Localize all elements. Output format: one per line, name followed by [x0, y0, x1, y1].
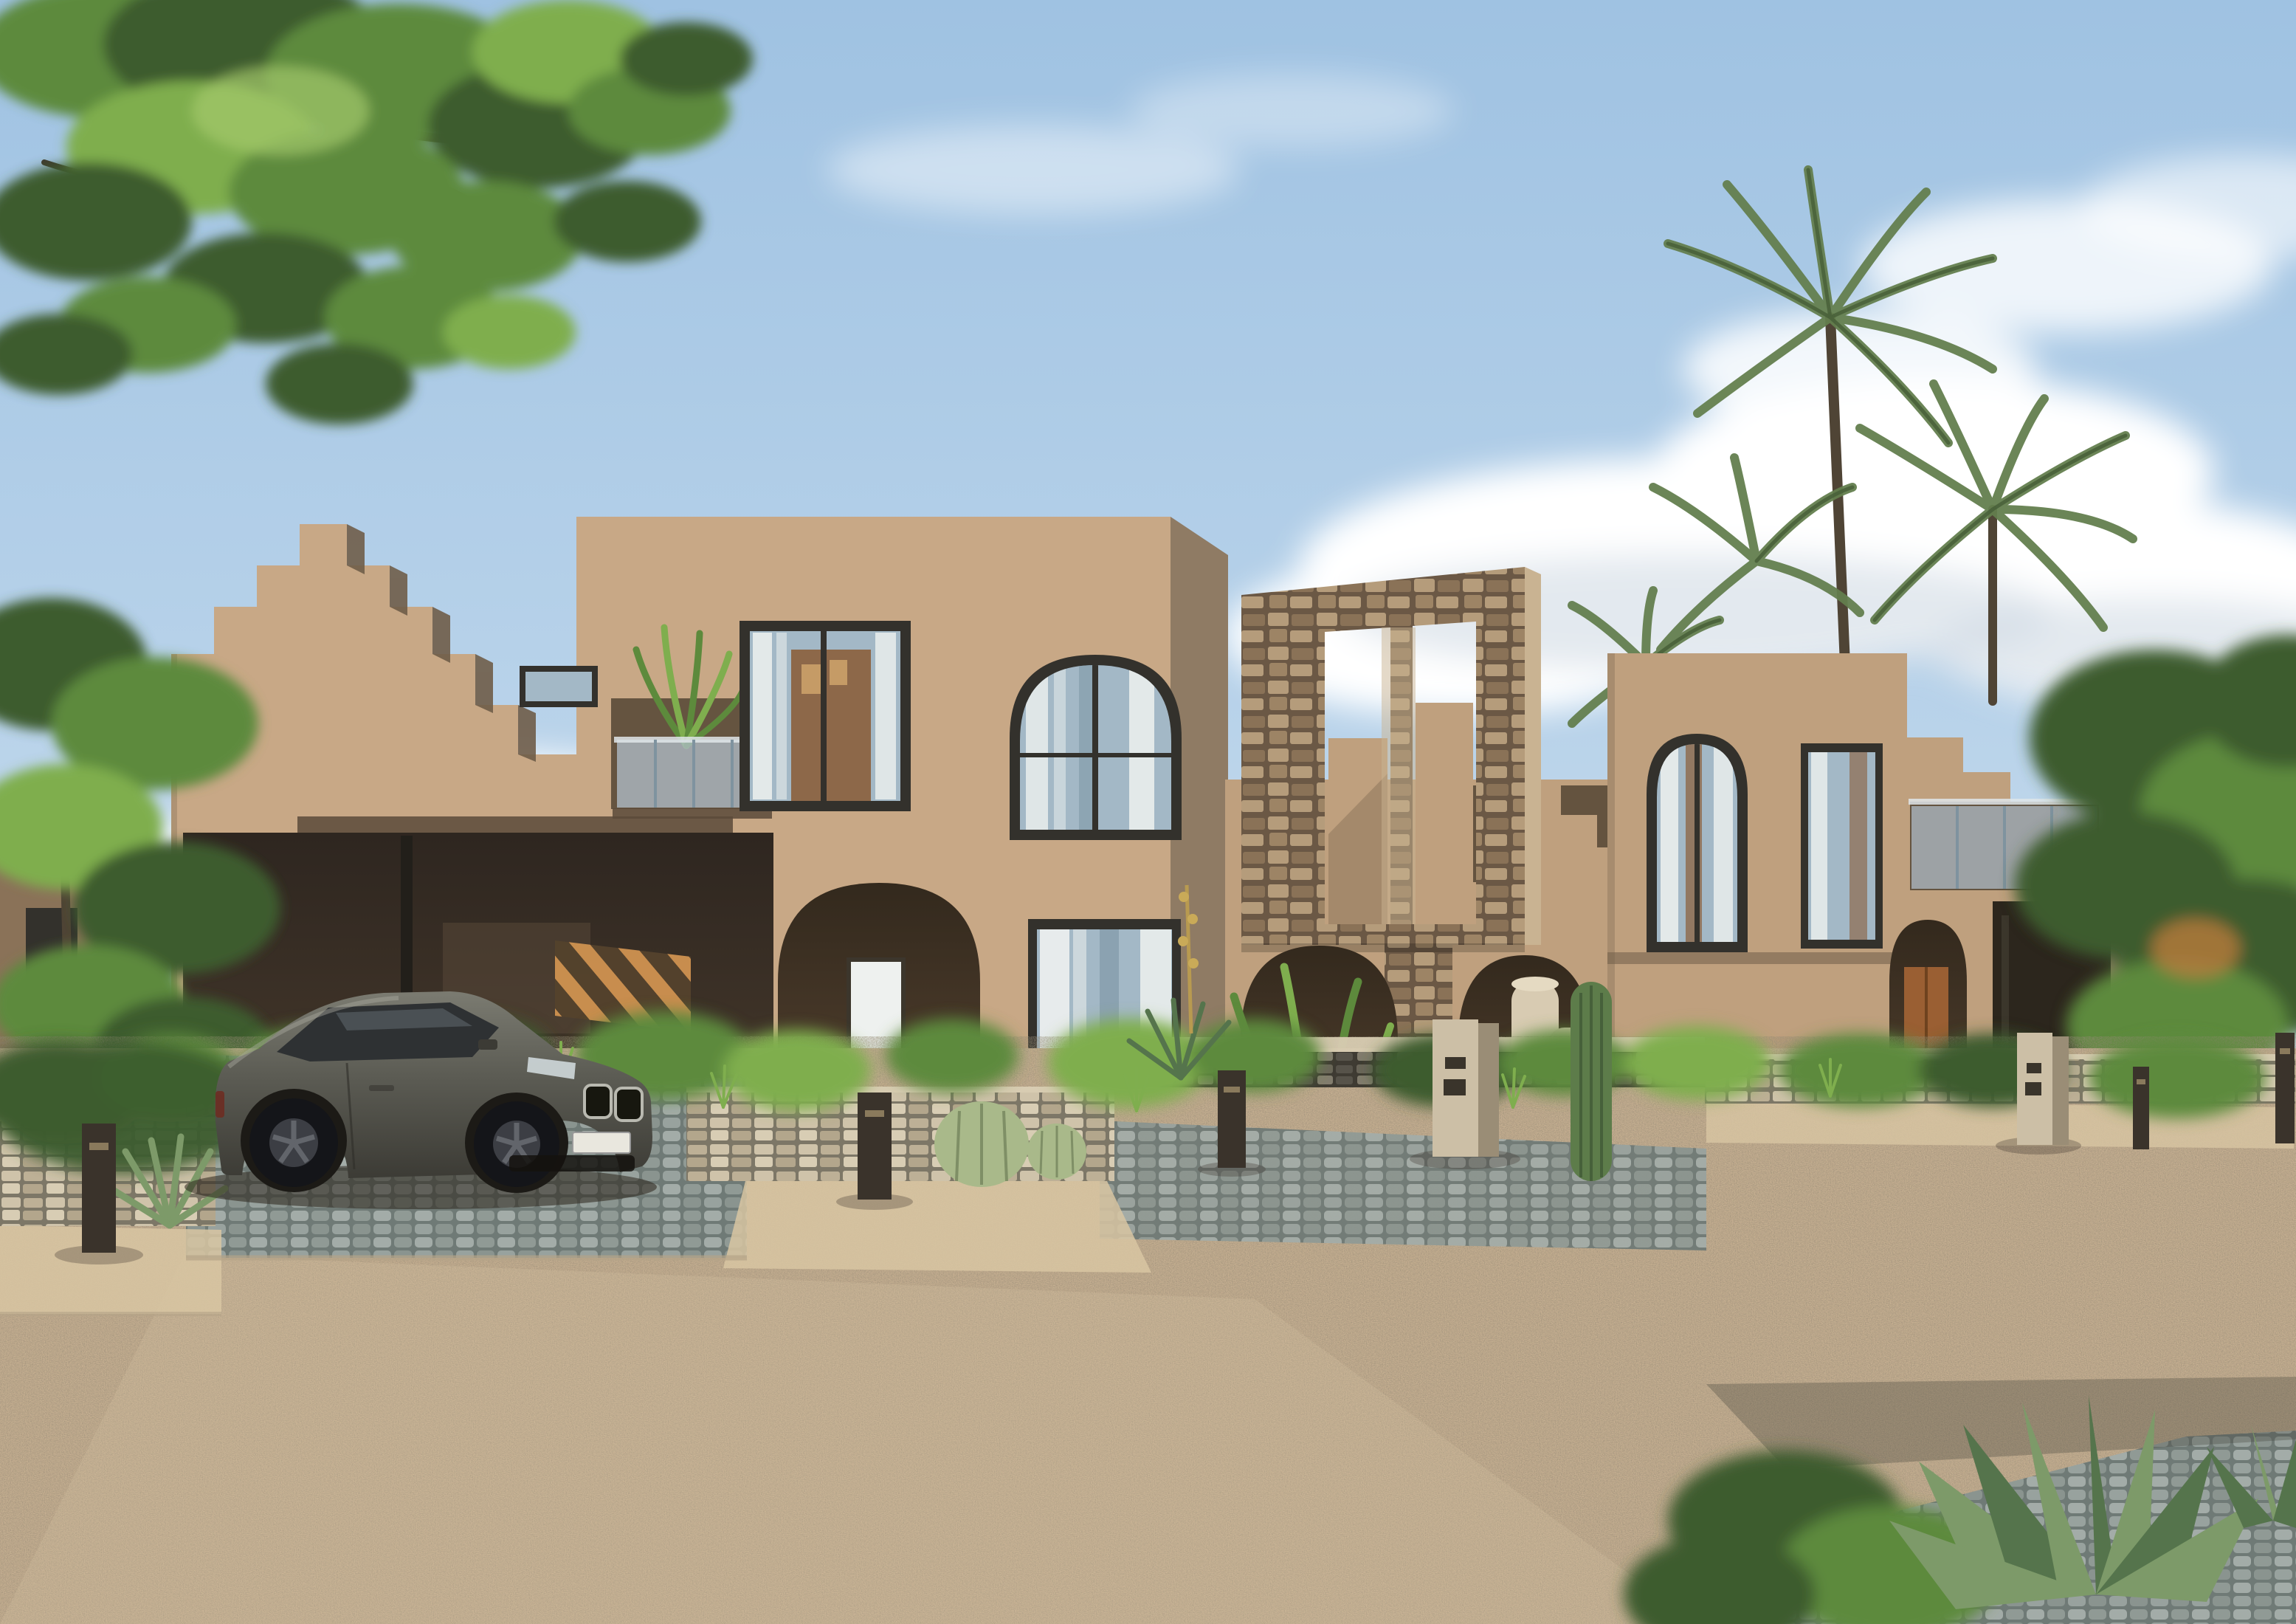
- license-plate: [573, 1132, 630, 1153]
- small-square-window: [520, 666, 598, 707]
- right-arched-window: [1647, 734, 1748, 952]
- frame-base-shadow: [1241, 943, 1525, 952]
- floor-shadow-line: [1607, 952, 1907, 964]
- side-mirror: [478, 1039, 497, 1050]
- front-intake: [509, 1155, 635, 1171]
- carport-soffit-shadow: [297, 816, 733, 833]
- rear-wheel: [249, 1098, 338, 1187]
- right-rect-window: [1801, 743, 1883, 949]
- mullion: [821, 631, 827, 801]
- wall-art: [801, 664, 824, 694]
- pedestal-slot: [1445, 1057, 1466, 1069]
- frame-edge-highlight: [1525, 567, 1541, 945]
- autumn-accent: [2151, 919, 2240, 978]
- front-wheel: [474, 1101, 559, 1187]
- arched-window-curtains: [1020, 661, 1171, 834]
- picture-window: [740, 621, 911, 811]
- taillight: [216, 1091, 224, 1118]
- architectural-rendering: Photorealistic architectural rendering: …: [0, 0, 2296, 1624]
- bollard: [2133, 1067, 2149, 1149]
- curtain: [753, 633, 772, 799]
- kidney-grille: [585, 1085, 611, 1118]
- frame-light-pillar: [1382, 627, 1416, 924]
- door-handle: [369, 1085, 394, 1091]
- columnar-cactus: [1571, 982, 1612, 1181]
- bollard: [2275, 1033, 2295, 1143]
- arched-window: [1010, 655, 1182, 840]
